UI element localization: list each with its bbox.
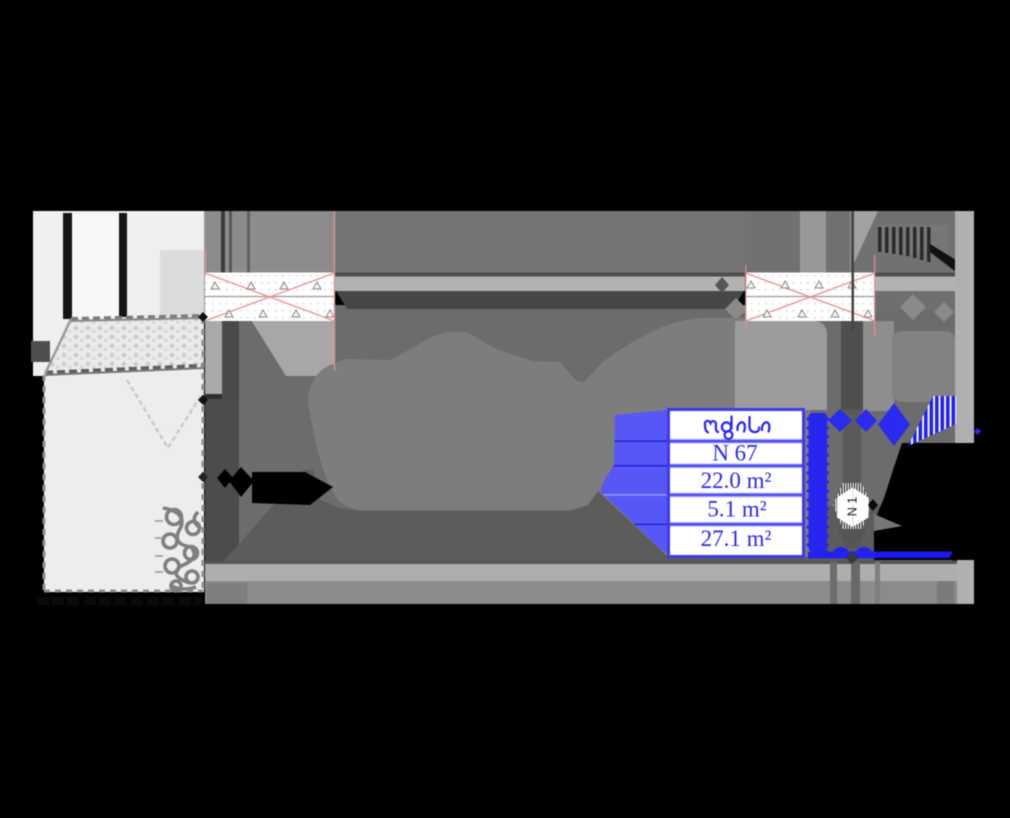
- svg-text:27.1 m²: 27.1 m²: [701, 526, 772, 551]
- svg-text:N 67: N 67: [712, 441, 757, 466]
- svg-text:5.1 m²: 5.1 m²: [707, 497, 766, 522]
- svg-text:22.0 m²: 22.0 m²: [701, 468, 772, 493]
- svg-text:N 1: N 1: [846, 497, 860, 517]
